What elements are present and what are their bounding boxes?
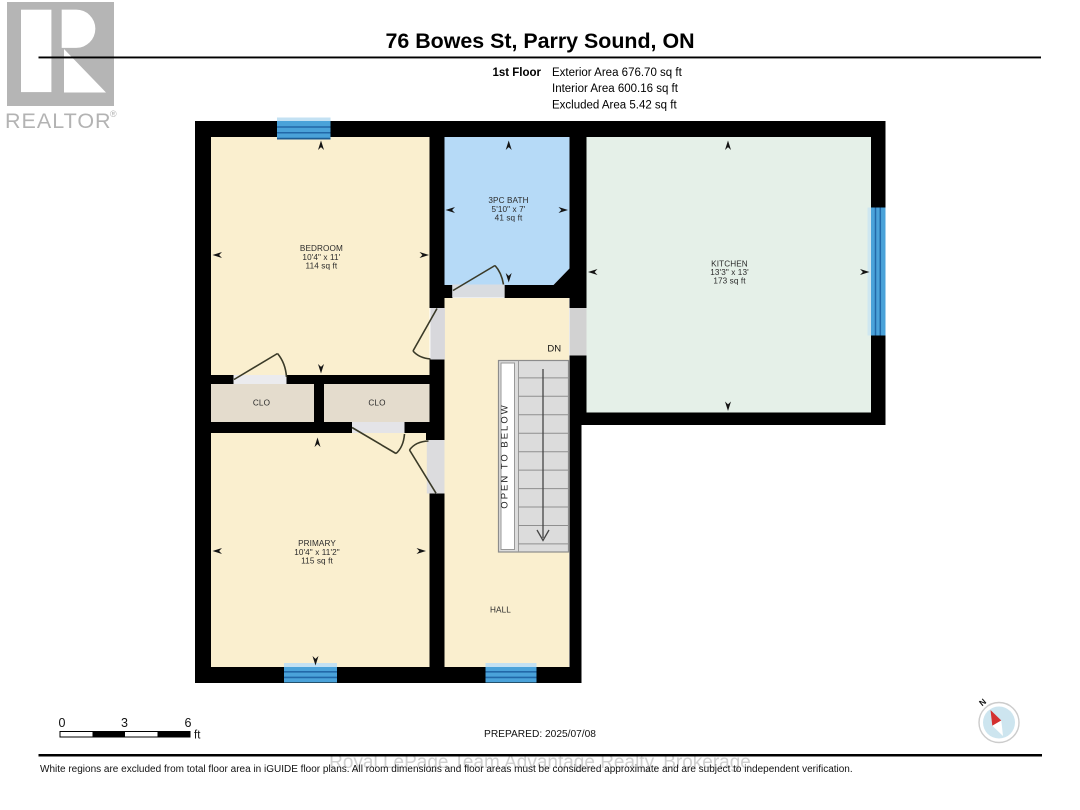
svg-text:10'4" x 11'2": 10'4" x 11'2" [294, 548, 340, 557]
svg-text:Interior Area 600.16 sq ft: Interior Area 600.16 sq ft [552, 83, 679, 95]
svg-text:PRIMARY: PRIMARY [298, 539, 336, 548]
svg-text:0: 0 [59, 716, 66, 730]
svg-text:173 sq ft: 173 sq ft [713, 277, 746, 286]
svg-text:115 sq ft: 115 sq ft [301, 557, 333, 566]
svg-text:114 sq ft: 114 sq ft [306, 262, 338, 271]
svg-text:CLO: CLO [253, 399, 270, 408]
svg-text:ft: ft [194, 730, 201, 742]
svg-text:PREPARED: 2025/07/08: PREPARED: 2025/07/08 [484, 729, 596, 740]
svg-text:41 sq ft: 41 sq ft [495, 214, 523, 223]
svg-text:Exterior Area 676.70 sq ft: Exterior Area 676.70 sq ft [552, 67, 683, 79]
svg-text:OPEN TO BELOW: OPEN TO BELOW [500, 403, 511, 508]
svg-text:3PC BATH: 3PC BATH [488, 196, 528, 205]
svg-text:5'10" x 7': 5'10" x 7' [492, 205, 526, 214]
svg-text:REALTOR: REALTOR [5, 109, 112, 133]
svg-text:CLO: CLO [368, 399, 385, 408]
svg-text:White regions are excluded fro: White regions are excluded from total fl… [40, 764, 853, 775]
svg-text:®: ® [110, 109, 117, 119]
svg-text:10'4" x 11': 10'4" x 11' [302, 253, 340, 262]
svg-text:3: 3 [121, 716, 128, 730]
svg-text:HALL: HALL [490, 606, 511, 615]
svg-text:BEDROOM: BEDROOM [300, 244, 343, 253]
svg-text:1st Floor: 1st Floor [492, 67, 541, 79]
svg-text:6: 6 [185, 716, 192, 730]
svg-text:DN: DN [547, 344, 561, 355]
svg-text:Excluded Area 5.42 sq ft: Excluded Area 5.42 sq ft [552, 99, 677, 111]
svg-text:76 Bowes St, Parry Sound, ON: 76 Bowes St, Parry Sound, ON [385, 29, 694, 53]
